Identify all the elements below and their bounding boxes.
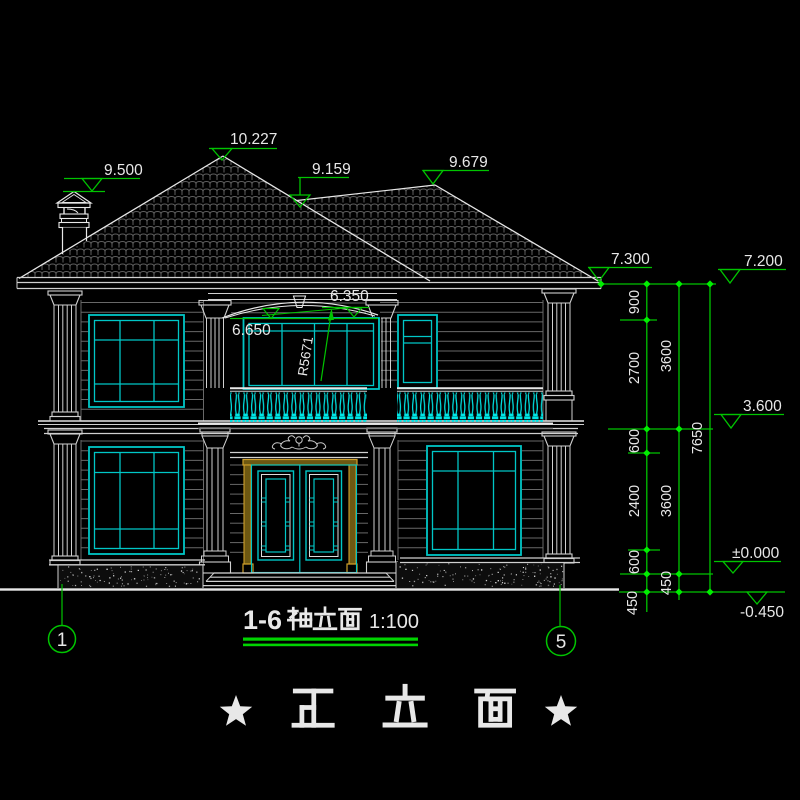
svg-text:10.227: 10.227 [230,131,277,148]
svg-text:7.300: 7.300 [611,251,650,268]
svg-text:2700: 2700 [627,352,643,384]
svg-text:3.600: 3.600 [743,398,782,415]
svg-text:1: 1 [57,630,68,651]
svg-text:1:100: 1:100 [369,611,419,633]
svg-text:9.159: 9.159 [312,161,351,178]
svg-text:6.650: 6.650 [232,322,271,339]
svg-text:9.500: 9.500 [104,162,143,179]
svg-text:450: 450 [625,591,641,615]
svg-text:450: 450 [659,571,675,595]
svg-text:2400: 2400 [627,485,643,517]
svg-text:±0.000: ±0.000 [732,545,780,562]
svg-text:7.200: 7.200 [744,253,783,270]
svg-text:3600: 3600 [659,340,675,372]
svg-text:9.679: 9.679 [449,154,488,171]
svg-text:6.350: 6.350 [330,288,369,305]
svg-text:7650: 7650 [690,422,706,454]
svg-text:5: 5 [556,632,567,653]
svg-text:900: 900 [627,290,643,314]
svg-text:600: 600 [627,429,643,453]
svg-text:600: 600 [627,550,643,574]
svg-text:3600: 3600 [659,485,675,517]
svg-text:-0.450: -0.450 [740,604,784,621]
svg-text:1-6: 1-6 [243,605,282,635]
